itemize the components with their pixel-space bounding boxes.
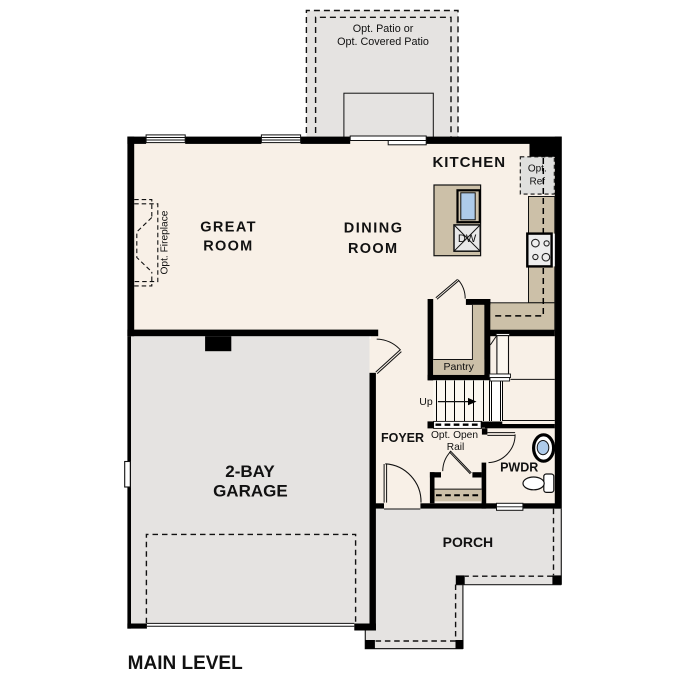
svg-text:Opt. Covered Patio: Opt. Covered Patio [337,36,429,48]
svg-text:GARAGE: GARAGE [213,482,288,501]
svg-text:DINING: DINING [344,220,404,236]
svg-text:Rail: Rail [447,442,465,453]
svg-text:Opt. Open: Opt. Open [431,430,478,441]
svg-text:Opt. Patio or: Opt. Patio or [353,23,414,35]
svg-text:Pantry: Pantry [444,361,475,373]
svg-text:ROOM: ROOM [348,241,398,257]
svg-text:PORCH: PORCH [443,534,494,550]
svg-text:GREAT: GREAT [200,220,257,236]
svg-text:KITCHEN: KITCHEN [432,154,506,171]
svg-text:2-BAY: 2-BAY [225,462,275,481]
svg-text:FOYER: FOYER [381,431,424,445]
svg-text:Up: Up [419,396,433,408]
svg-text:DW: DW [458,233,477,245]
svg-text:MAIN LEVEL: MAIN LEVEL [128,653,243,674]
svg-text:Opt. Fireplace: Opt. Fireplace [159,210,170,274]
svg-text:PWDR: PWDR [500,461,538,475]
svg-text:ROOM: ROOM [203,239,253,255]
